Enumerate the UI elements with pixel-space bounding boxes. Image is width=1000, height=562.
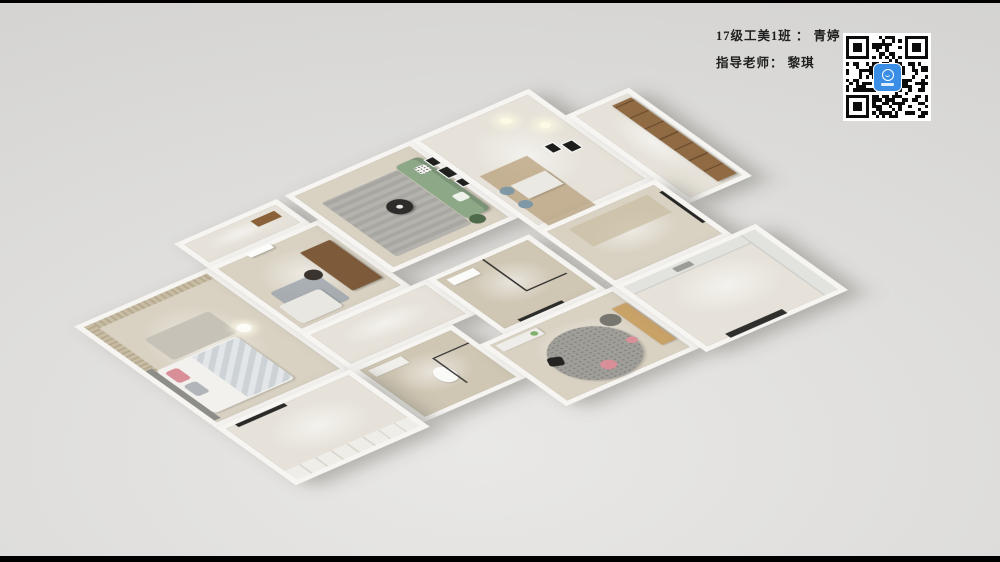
render-canvas: 17级工美1班 ： 青婷 指导老师： 黎琪 <box>0 0 1000 562</box>
wall-lamp-glow <box>537 120 554 129</box>
wall-lamp-glow <box>498 116 515 125</box>
kujiale-app-icon <box>873 63 902 92</box>
qr-code-icon <box>843 33 931 121</box>
wood-shelf <box>250 211 282 227</box>
project-annotation: 17级工美1班 ： 青婷 指导老师： 黎琪 <box>716 30 846 83</box>
wall-art-frame <box>545 143 561 153</box>
advisor-info: 指导老师： 黎琪 <box>716 57 846 70</box>
wall-art-frame <box>562 140 581 151</box>
app-logo-text-bar <box>881 83 894 86</box>
letterbox-bottom <box>0 556 1000 562</box>
bathroom-sink <box>446 268 481 285</box>
black-framed-window <box>725 309 787 338</box>
app-logo-glyph <box>882 69 894 81</box>
kitchen-counter <box>740 229 838 295</box>
student-info: 17级工美1班 ： 青婷 <box>716 30 846 43</box>
floor-plan <box>40 61 899 522</box>
vanity <box>368 356 410 377</box>
qr-module <box>925 115 928 118</box>
shower-glass <box>525 273 567 292</box>
wardrobe <box>285 417 420 480</box>
shower-glass <box>482 259 527 291</box>
letterbox-top <box>0 0 1000 3</box>
shower-glass <box>434 342 470 358</box>
